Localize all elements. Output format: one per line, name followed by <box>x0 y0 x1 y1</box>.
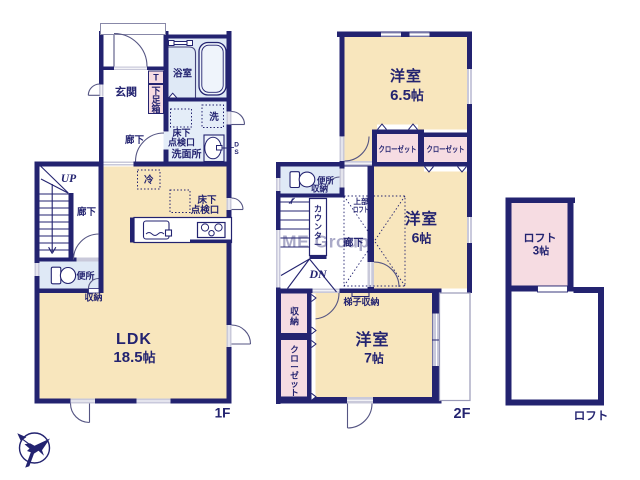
svg-text:7帖: 7帖 <box>364 350 384 366</box>
svg-text:洋室: 洋室 <box>390 67 422 85</box>
svg-text:1F: 1F <box>215 406 231 421</box>
svg-text:6.5帖: 6.5帖 <box>390 87 424 104</box>
svg-text:廊下: 廊下 <box>125 134 145 146</box>
svg-text:3帖: 3帖 <box>533 245 549 258</box>
svg-text:収納: 収納 <box>311 184 328 194</box>
svg-text:タ: タ <box>314 231 322 241</box>
svg-text:ン: ン <box>314 223 322 232</box>
svg-text:点検口: 点検口 <box>191 204 220 216</box>
svg-text:廊下: 廊下 <box>344 236 364 249</box>
svg-text:洋室: 洋室 <box>405 209 438 228</box>
svg-text:洗面所: 洗面所 <box>172 148 202 161</box>
svg-text:ロフト: ロフト <box>574 410 609 423</box>
svg-text:ロフト: ロフト <box>524 232 557 245</box>
svg-text:DN: DN <box>308 267 328 281</box>
svg-text:カ: カ <box>314 205 322 214</box>
svg-text:収納: 収納 <box>84 292 102 303</box>
svg-text:UP: UP <box>61 173 77 185</box>
svg-text:T: T <box>153 73 159 83</box>
svg-text:便所: 便所 <box>76 270 94 281</box>
svg-text:18.5帖: 18.5帖 <box>113 349 155 366</box>
svg-text:洋室: 洋室 <box>355 330 389 349</box>
svg-text:点検口: 点検口 <box>168 137 195 148</box>
svg-text:D: D <box>234 141 239 148</box>
svg-text:LDK: LDK <box>116 331 152 348</box>
svg-text:ト: ト <box>290 388 299 398</box>
svg-text:箱: 箱 <box>151 103 160 114</box>
svg-text:ー: ー <box>314 241 322 250</box>
svg-text:浴室: 浴室 <box>173 68 193 80</box>
svg-text:収: 収 <box>290 306 300 317</box>
svg-text:洗: 洗 <box>209 111 219 123</box>
svg-text:廊下: 廊下 <box>77 206 97 218</box>
svg-text:6帖: 6帖 <box>412 230 432 246</box>
svg-text:ロフト: ロフト <box>353 205 369 214</box>
svg-text:床下: 床下 <box>172 127 190 138</box>
svg-text:冷: 冷 <box>144 174 154 186</box>
svg-text:2F: 2F <box>454 406 471 422</box>
svg-text:クローゼット: クローゼット <box>379 144 417 154</box>
svg-text:玄関: 玄関 <box>115 85 137 99</box>
svg-text:S: S <box>234 149 239 156</box>
svg-text:納: 納 <box>290 316 299 327</box>
svg-text:梯子収納: 梯子収納 <box>343 296 379 307</box>
svg-text:クローゼット: クローゼット <box>427 144 465 154</box>
svg-text:ウ: ウ <box>314 214 322 223</box>
